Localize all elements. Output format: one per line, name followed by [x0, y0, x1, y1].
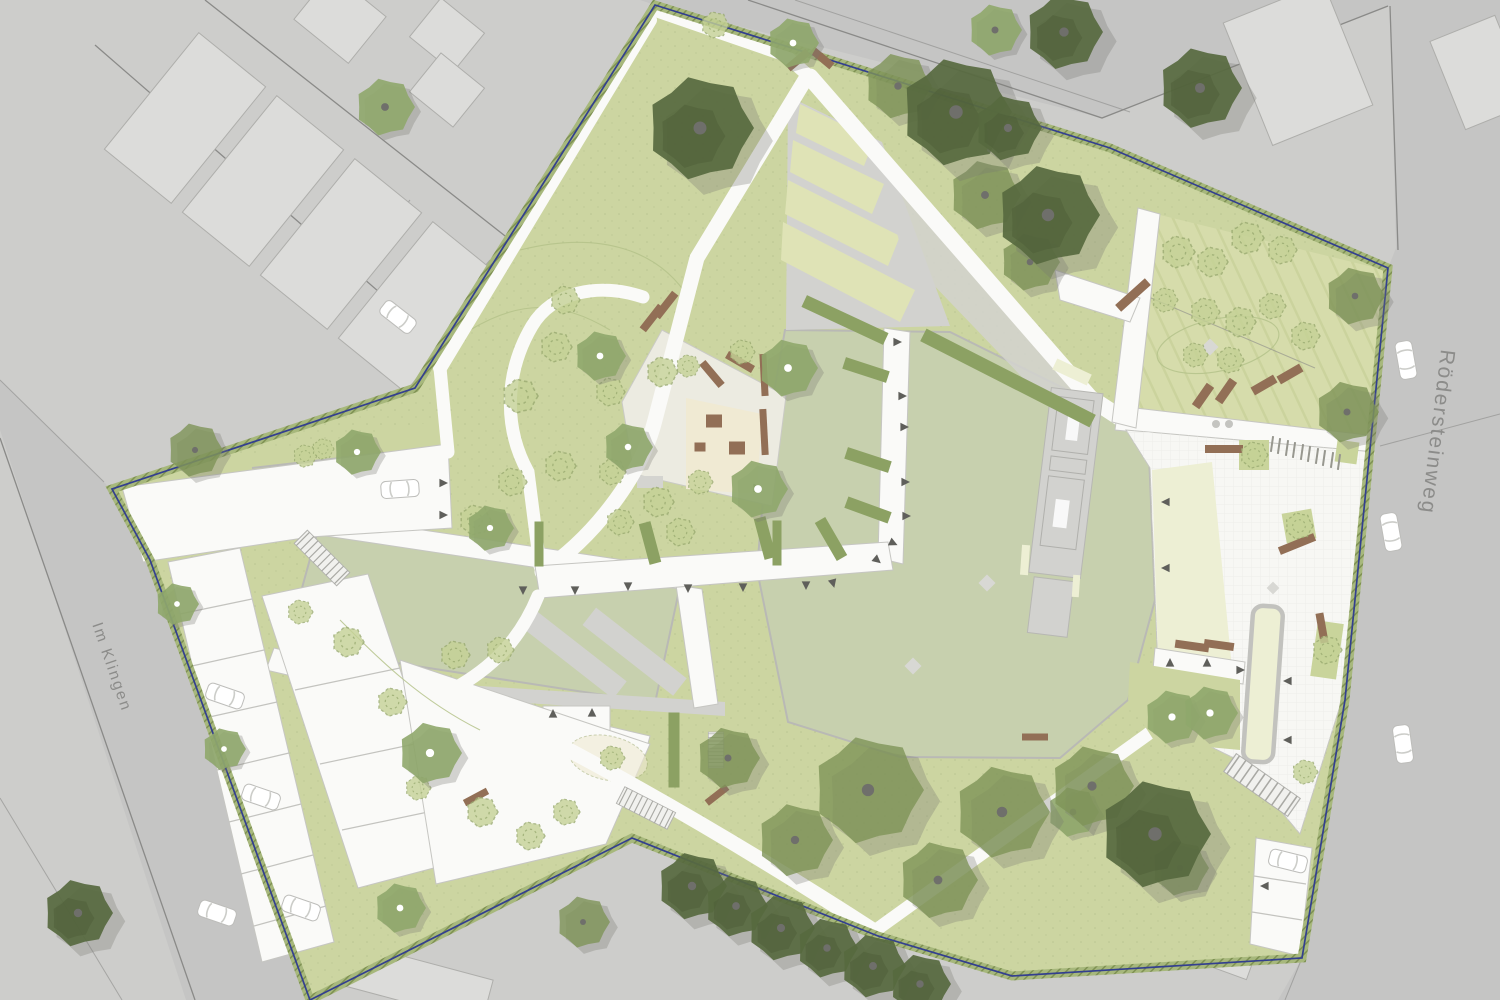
hedge: [535, 522, 544, 567]
bench: [695, 443, 706, 452]
footpath: [440, 368, 448, 452]
car: [380, 479, 419, 499]
play-slab: [637, 476, 663, 488]
bench: [1205, 445, 1243, 453]
tree-grate: [1212, 420, 1220, 428]
bench: [706, 415, 722, 428]
bench: [1022, 734, 1048, 741]
bench: [729, 442, 745, 455]
tree-grate: [1225, 420, 1233, 428]
site-plan-canvas: Rödersteinweg Im Klingen: [0, 0, 1500, 1000]
site-plan-page: Rödersteinweg Im Klingen: [0, 0, 1500, 1000]
hedge: [773, 521, 782, 566]
hedge: [669, 713, 680, 788]
